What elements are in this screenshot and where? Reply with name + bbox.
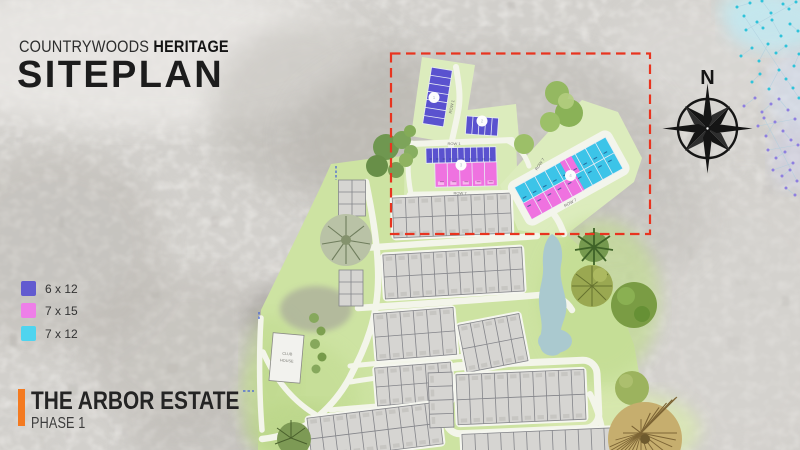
svg-text:ROW 7: ROW 7 — [453, 191, 467, 196]
svg-text:N: N — [700, 67, 714, 89]
svg-text:ROW 1: ROW 1 — [447, 141, 461, 146]
